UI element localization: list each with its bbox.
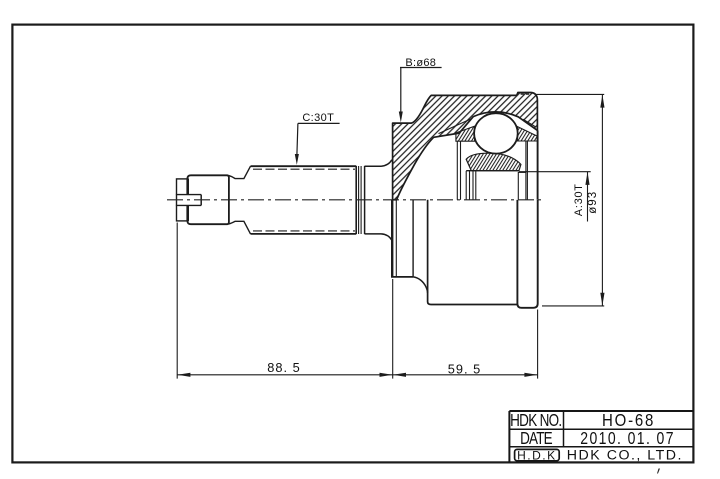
svg-text:2010. 01. 07: 2010. 01. 07: [580, 430, 675, 449]
svg-text:A:30T: A:30T: [573, 183, 585, 216]
svg-text:59. 5: 59. 5: [448, 362, 481, 377]
svg-text:HDK NO.: HDK NO.: [510, 412, 561, 431]
svg-text:ø93: ø93: [587, 191, 599, 214]
svg-text:H.D.K: H.D.K: [517, 448, 557, 462]
svg-text:C:30T: C:30T: [302, 112, 334, 124]
svg-text:HDK CO., LTD.: HDK CO., LTD.: [567, 448, 683, 464]
svg-text:DATE: DATE: [520, 429, 552, 448]
svg-text:HO-68: HO-68: [602, 411, 655, 430]
svg-text:88. 5: 88. 5: [267, 360, 300, 375]
